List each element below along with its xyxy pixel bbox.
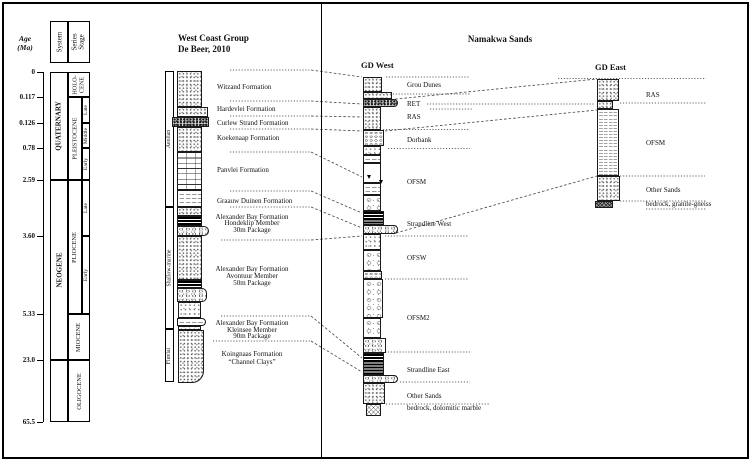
litho-segment [363,155,381,163]
litho-segment [363,250,381,271]
age-tick-label: 3.60 [5,232,35,240]
series-holocene-line2: CENE [79,75,86,94]
litho-segment [363,146,381,155]
unit-label-dorbank: Dorbank [407,136,432,144]
litho-segment [363,211,384,225]
gd-west-title: GD West [361,60,394,70]
axis-tick [37,360,43,361]
litho-segment [595,201,613,208]
age-axis-line [43,72,44,422]
header-series-stage-box: Series Stage [68,21,90,63]
litho-segment [597,79,619,101]
series-oligocene-box: OLIGOCENE [68,360,90,422]
formation-label-witzand: Witzand Formation [217,83,271,91]
west-coast-title-line2: De Beer, 2010 [178,44,249,55]
formation-label-curlew: Curlew Strand Formation [217,119,289,127]
unit-label-ras-east: RAS [646,91,660,99]
environment-aeolian-label: Aeolian [167,130,173,148]
namakwa-title: Namakwa Sands [430,34,570,45]
formation-label-graauw: Graauw Duinen Formation [217,197,292,205]
environment-shallow-marine-box: Shallow-marine [165,207,174,329]
litho-segment [363,353,384,375]
litho-segment [177,216,202,226]
stage-pleist-early-box: Early [82,148,91,180]
litho-segment [172,117,209,127]
gd-east-title: GD East [595,62,626,72]
litho-segment [363,279,383,318]
environment-aeolian-box: Aeolian [165,71,174,207]
litho-segment [363,130,384,146]
system-empty-box [50,360,68,422]
litho-segment [363,383,385,404]
litho-segment [363,99,398,107]
system-neogene-box: NEOGENE [50,180,68,360]
litho-segment [177,190,202,207]
litho-segment [177,71,202,107]
age-tick-label: 0 [5,68,35,76]
stratigraphic-correlation-diagram: Age (Ma) System Series Stage 0 0.117 0.1… [0,0,751,461]
stage-plio-early-box: Early [82,236,91,314]
litho-segment [363,183,381,195]
litho-segment [363,107,381,130]
environment-fluvial-label: Fluvial [167,347,173,363]
litho-segment [363,92,392,99]
unit-label-other-sands-east: Other Sands [646,186,680,194]
litho-segment [177,318,206,326]
age-tick-label: 23.0 [5,356,35,364]
burrow-symbol [379,180,383,184]
unit-label-bedrock-east: bedrock, granite-gneiss [646,200,711,208]
unit-label-other-sands-west: Other Sands [407,392,441,400]
unit-label-strandline-east: Strandline East [407,366,450,374]
litho-segment [178,330,204,383]
axis-tick [37,314,43,315]
avontuur-line3: 50m Package [210,280,294,287]
age-axis-title-line2: (Ma) [8,44,42,53]
system-neogene-label: NEOGENE [55,252,63,287]
stage-pleist-late-label: Late [83,105,89,115]
age-tick-label: 5.33 [5,310,35,318]
burrow-symbol [367,175,371,179]
formation-label-panvlei: Panvlei Formation [217,166,269,174]
litho-segment [363,338,386,353]
environment-fluvial-box: Fluvial [165,329,174,382]
axis-tick [37,422,43,423]
kleinsee-line3: 90m Package [210,333,294,340]
axis-tick [37,97,43,98]
stage-plio-late-label: Late [83,203,89,213]
axis-tick [37,180,43,181]
unit-label-strandline-west: Strandline West [407,220,451,228]
series-oligocene-label: OLIGOCENE [76,373,83,410]
unit-label-ras-west: RAS [407,113,421,121]
litho-segment [178,302,201,318]
litho-segment [177,107,208,117]
west-coast-title-line1: West Coast Group [178,33,249,44]
series-pliocene-label: PLIOCENE [71,232,78,263]
header-system-box: System [50,21,68,63]
axis-tick [37,148,43,149]
axis-tick [37,72,43,73]
age-axis-title: Age (Ma) [8,35,42,52]
litho-segment [177,280,202,288]
litho-segment [177,207,202,216]
stage-plio-early-label: Early [83,269,89,281]
litho-segment [363,225,398,234]
header-stage-label: Stage [79,33,86,50]
west-coast-title: West Coast Group De Beer, 2010 [178,33,249,55]
formation-label-avontuur: Alexander Bay Formation Avontuur Member … [210,266,294,287]
litho-segment [177,288,207,302]
unit-label-ofsw: OFSW [407,254,426,262]
system-quaternary-box: QUATERNARY [50,72,68,180]
series-pleistocene-box: PLEISTOCENE [68,97,82,180]
age-tick-label: 0.78 [5,144,35,152]
unit-label-bedrock-west: bedrock, dolomitic marble [407,404,481,412]
litho-segment [597,101,613,109]
age-tick-label: 0.126 [5,119,35,127]
environment-shallow-marine-label: Shallow-marine [167,249,173,286]
series-holocene-box: HOLO- CENE [68,72,90,97]
koingnaas-line2: “Channel Clays” [210,359,294,367]
litho-segment [363,375,398,383]
litho-segment [363,77,382,92]
axis-tick [37,123,43,124]
stage-pleist-late-box: Late [82,97,91,123]
stage-pleist-middle-label: Middle [83,127,89,143]
unit-label-ofsm-west: OFSM [407,178,426,186]
litho-segment [363,234,381,250]
age-tick-label: 0.117 [5,93,35,101]
tie-lines [311,70,597,372]
unit-label-ofsm2: OFSM2 [407,314,430,322]
formation-label-hondeklip: Alexander Bay Formation Hondeklip Member… [210,214,294,233]
header-system-label: System [55,32,63,53]
series-pleistocene-label: PLEISTOCENE [71,117,78,159]
litho-segment [366,404,381,416]
litho-segment [177,152,202,190]
formation-label-koekenaap: Koekenaap Formation [217,134,279,142]
formation-label-kleinsee: Alexander Bay Formation Kleinsee Member … [210,320,294,340]
litho-segment [363,318,381,338]
unit-label-grou-dunes: Grou Dunes [407,81,441,89]
stage-pleist-early-label: Early [83,158,89,170]
litho-segment [177,236,202,280]
stage-pleist-middle-box: Middle [82,123,91,148]
formation-label-hardevlei: Hardevlei Formation [217,105,276,113]
axis-tick [37,236,43,237]
litho-segment [597,109,619,176]
age-tick-label: 2.59 [5,176,35,184]
unit-label-ofsm-east: OFSM [646,139,665,147]
series-miocene-box: MIOCENE [68,314,90,360]
age-tick-label: 65.5 [5,418,35,426]
litho-segment [363,195,381,211]
series-miocene-label: MIOCENE [76,322,83,351]
stage-plio-late-box: Late [82,180,91,236]
unit-label-ret: RET [407,100,420,108]
litho-segment [177,226,209,236]
panel-divider [321,4,322,457]
system-quaternary-label: QUATERNARY [55,101,63,150]
litho-segment [177,127,202,152]
litho-segment [597,176,620,201]
hondeklip-line3: 30m Package [210,227,294,233]
series-pliocene-box: PLIOCENE [68,180,82,314]
formation-label-koingnaas: Koingnaas Formation “Channel Clays” [210,351,294,366]
litho-segment [363,271,382,279]
